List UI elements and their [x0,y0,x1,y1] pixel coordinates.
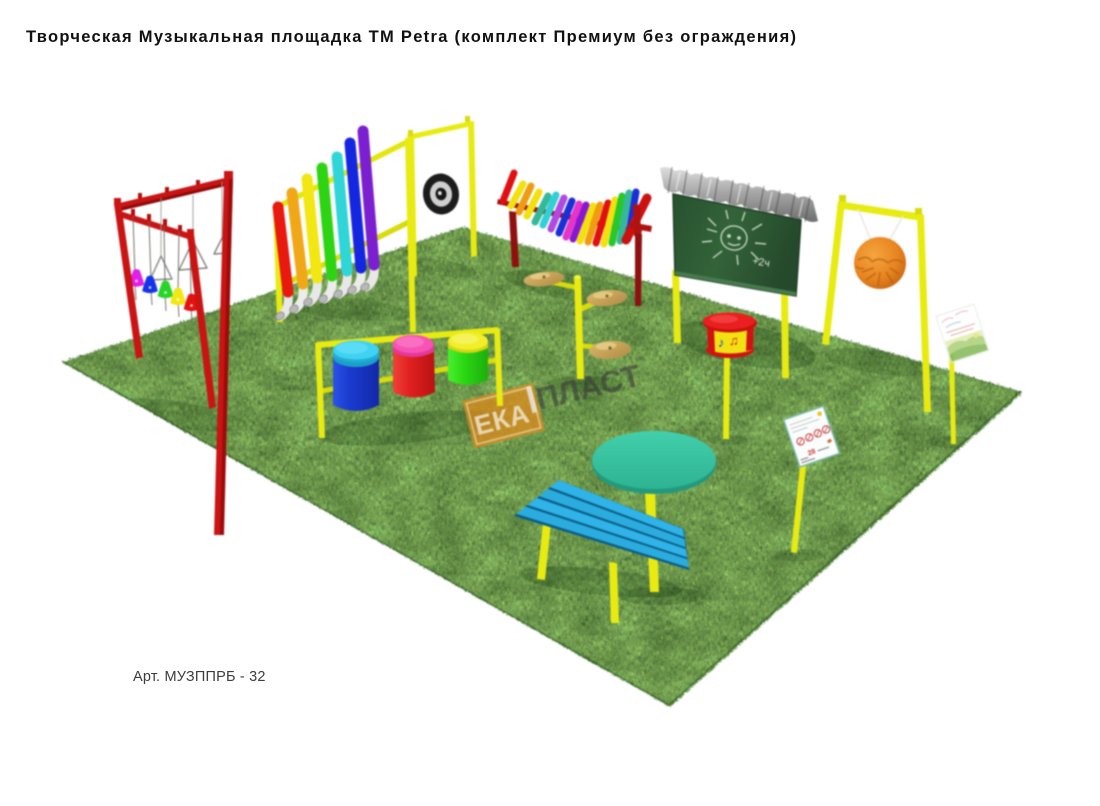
svg-text:♪: ♪ [718,335,725,350]
svg-text:♫: ♫ [729,333,739,348]
